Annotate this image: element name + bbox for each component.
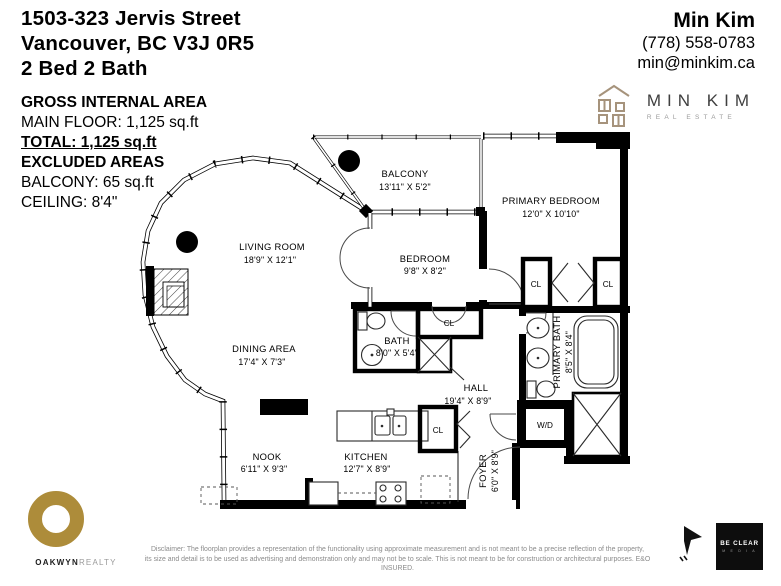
bath-shower <box>418 337 451 372</box>
dims-dining-area: 17'4" X 7'3" <box>238 357 285 367</box>
dims-nook: 6'11" X 9'3" <box>241 464 288 474</box>
label-washer-dryer: W/D <box>537 421 553 430</box>
column-living <box>176 231 198 253</box>
oakwyn-wordmark: OAKWYNREALTY <box>20 558 132 567</box>
label-primary-bath: PRIMARY BATH <box>551 316 562 389</box>
label-primary-bedroom: PRIMARY BEDROOM <box>502 195 600 206</box>
curved-window-wall <box>143 158 366 500</box>
label-kitchen: KITCHEN <box>344 451 387 462</box>
label-hall: HALL <box>464 382 489 393</box>
dims-hall: 19'4" X 8'9" <box>444 396 491 406</box>
label-foyer: FOYER <box>477 454 488 488</box>
label-closet-primary-2: CL <box>603 280 614 289</box>
primary-bath-tub <box>574 316 618 388</box>
label-dining-area: DINING AREA <box>232 343 296 354</box>
floorplan-page: 1503-323 Jervis Street Vancouver, BC V3J… <box>0 0 781 586</box>
disclaimer: Disclaimer: The floorplan provides a rep… <box>135 545 660 574</box>
kitchen-dishwasher <box>309 482 338 505</box>
column-balcony <box>338 150 360 172</box>
fireplace <box>154 269 188 315</box>
label-bath: BATH <box>384 335 410 346</box>
hall-foyer-door <box>490 414 516 440</box>
bedroom-french-doors <box>340 213 370 308</box>
label-closet-hall: CL <box>444 319 455 328</box>
oakwyn-logo-icon <box>27 489 85 549</box>
north-arrow-icon <box>672 520 708 566</box>
dims-primary-bath: 8'5" X 8'4" <box>564 331 574 373</box>
bath-door <box>391 311 416 336</box>
label-living-room: LIVING ROOM <box>239 241 305 252</box>
fridge-dashed <box>421 476 450 503</box>
primary-bedroom-door <box>489 269 524 304</box>
entry-opening <box>466 500 516 509</box>
brokerage-name: OAKWYN <box>35 558 79 567</box>
brokerage-suffix: REALTY <box>79 558 117 567</box>
floorplan-drawing: BALCONY 13'11" X 5'2" PRIMARY BEDROOM 12… <box>0 0 781 586</box>
beclear-logo: BE CLEAR M E D I A <box>716 523 763 570</box>
disclaimer-line2: its size and detail is to be used as adv… <box>135 555 660 574</box>
media-name: BE CLEAR <box>720 540 759 547</box>
dims-bedroom: 9'8" X 8'2" <box>404 266 446 276</box>
dims-kitchen: 12'7" X 8'9" <box>343 464 390 474</box>
label-foyer-group: FOYER 6'0" X 8'9" <box>477 450 500 492</box>
dims-foyer: 6'0" X 8'9" <box>490 450 500 492</box>
label-bedroom: BEDROOM <box>400 253 451 264</box>
closet-bifold-doors <box>552 263 594 302</box>
kitchen-closet-bifold <box>457 411 470 448</box>
kitchen-island <box>337 409 428 441</box>
label-balcony: BALCONY <box>382 168 429 179</box>
kitchen-stove <box>376 482 406 505</box>
label-closet-kitchen: CL <box>433 426 444 435</box>
disclaimer-line1: Disclaimer: The floorplan provides a rep… <box>135 545 660 555</box>
primary-bedroom-window-band <box>483 132 630 149</box>
dims-living-room: 18'9" X 12'1" <box>244 255 296 265</box>
hall-leader-line <box>450 367 464 380</box>
dims-balcony: 13'11" X 5'2" <box>379 182 431 192</box>
media-subtitle: M E D I A <box>722 549 757 553</box>
label-primary-bath-group: PRIMARY BATH 8'5" X 8'4" <box>551 316 574 389</box>
primary-bath-vanity <box>527 313 553 375</box>
bath-toilet <box>358 312 385 330</box>
dims-primary-bedroom: 12'0" X 10'10" <box>522 209 579 219</box>
label-closet-primary-1: CL <box>531 280 542 289</box>
primary-bath-shower <box>573 393 621 456</box>
bedroom-window-band <box>359 204 485 218</box>
dims-bath: 8'0" X 5'4" <box>376 348 418 358</box>
label-nook: NOOK <box>253 451 282 462</box>
